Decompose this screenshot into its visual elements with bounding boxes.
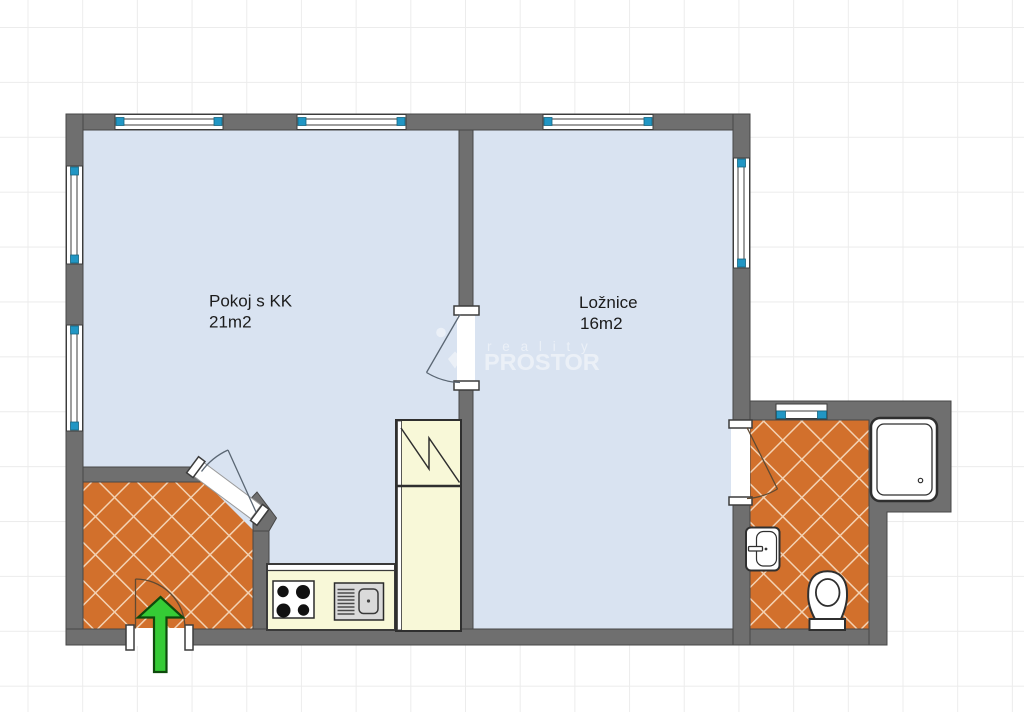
svg-text:PROSTOR: PROSTOR	[484, 349, 600, 375]
svg-text:Ložnice: Ložnice	[579, 293, 638, 312]
svg-text:Pokoj s KK: Pokoj s KK	[209, 292, 293, 311]
svg-text:16m2: 16m2	[580, 314, 623, 333]
svg-text:21m2: 21m2	[209, 313, 252, 332]
